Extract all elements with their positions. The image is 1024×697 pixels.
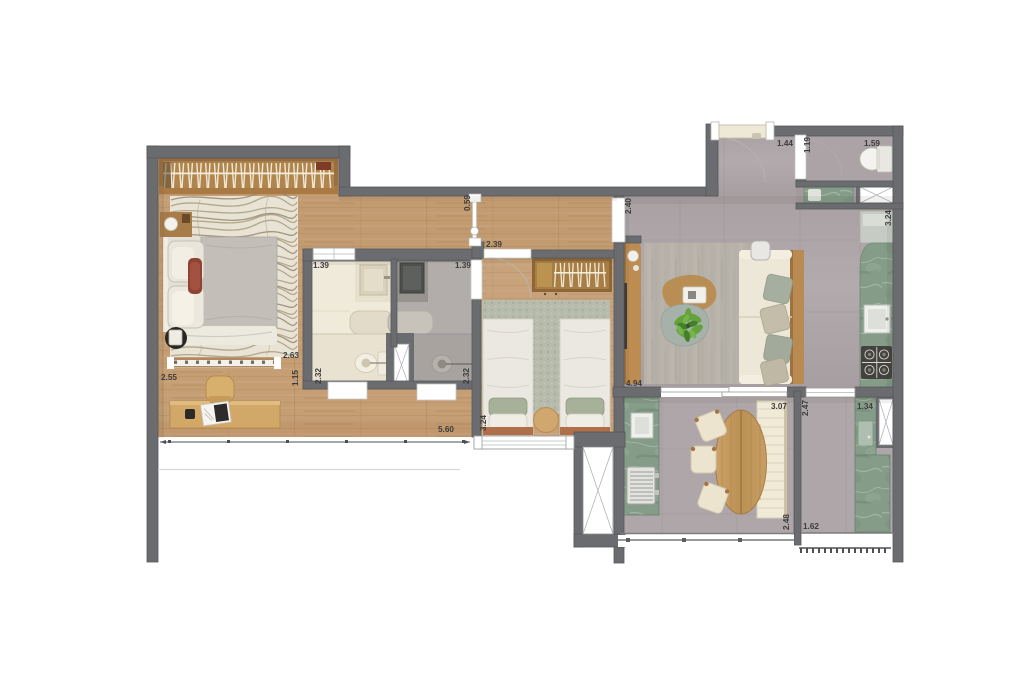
svg-text:2.32: 2.32	[314, 368, 323, 384]
svg-text:1.59: 1.59	[864, 139, 880, 148]
svg-text:3.24: 3.24	[479, 415, 488, 431]
svg-text:1.44: 1.44	[777, 139, 793, 148]
svg-text:5.60: 5.60	[438, 425, 454, 434]
svg-text:3.24: 3.24	[884, 210, 893, 226]
svg-text:4.94: 4.94	[626, 379, 642, 388]
svg-text:0.59: 0.59	[463, 195, 472, 211]
svg-text:1.39: 1.39	[455, 261, 471, 270]
svg-text:1.39: 1.39	[313, 261, 329, 270]
svg-text:2.47: 2.47	[801, 400, 810, 416]
svg-text:2.48: 2.48	[782, 514, 791, 530]
svg-text:1.34: 1.34	[857, 402, 873, 411]
svg-text:2.32: 2.32	[462, 368, 471, 384]
svg-text:1.15: 1.15	[291, 370, 300, 386]
svg-text:2.63: 2.63	[283, 351, 299, 360]
svg-text:2.39: 2.39	[486, 240, 502, 249]
svg-text:2.55: 2.55	[161, 373, 177, 382]
svg-text:2.40: 2.40	[624, 198, 633, 214]
svg-text:3.07: 3.07	[771, 402, 787, 411]
svg-text:1.62: 1.62	[803, 522, 819, 531]
svg-text:1.19: 1.19	[803, 137, 812, 153]
